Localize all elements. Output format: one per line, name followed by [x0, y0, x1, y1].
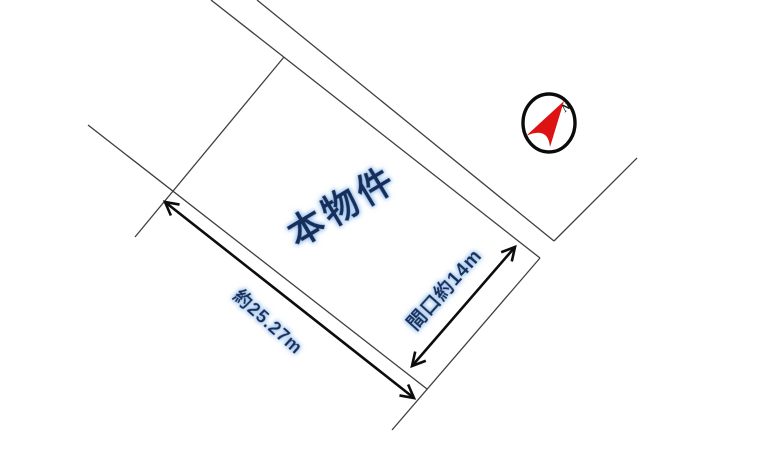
road1-near-line: [211, 0, 540, 258]
road2-far-line: [554, 158, 637, 241]
compass: N: [523, 94, 575, 152]
lot-diagram: 本物件 約25.27m 間口約14m N: [0, 0, 757, 465]
property-label: 本物件: [280, 158, 404, 255]
frontage-dimension-label: 間口約14m: [402, 244, 487, 334]
road1-far-line: [257, 0, 554, 241]
parcel-left-edge-line: [135, 57, 284, 237]
road2-near-line: [392, 258, 540, 430]
site-plan-svg: 本物件 約25.27m 間口約14m N: [0, 0, 757, 465]
side-dimension-label: 約25.27m: [229, 285, 307, 358]
